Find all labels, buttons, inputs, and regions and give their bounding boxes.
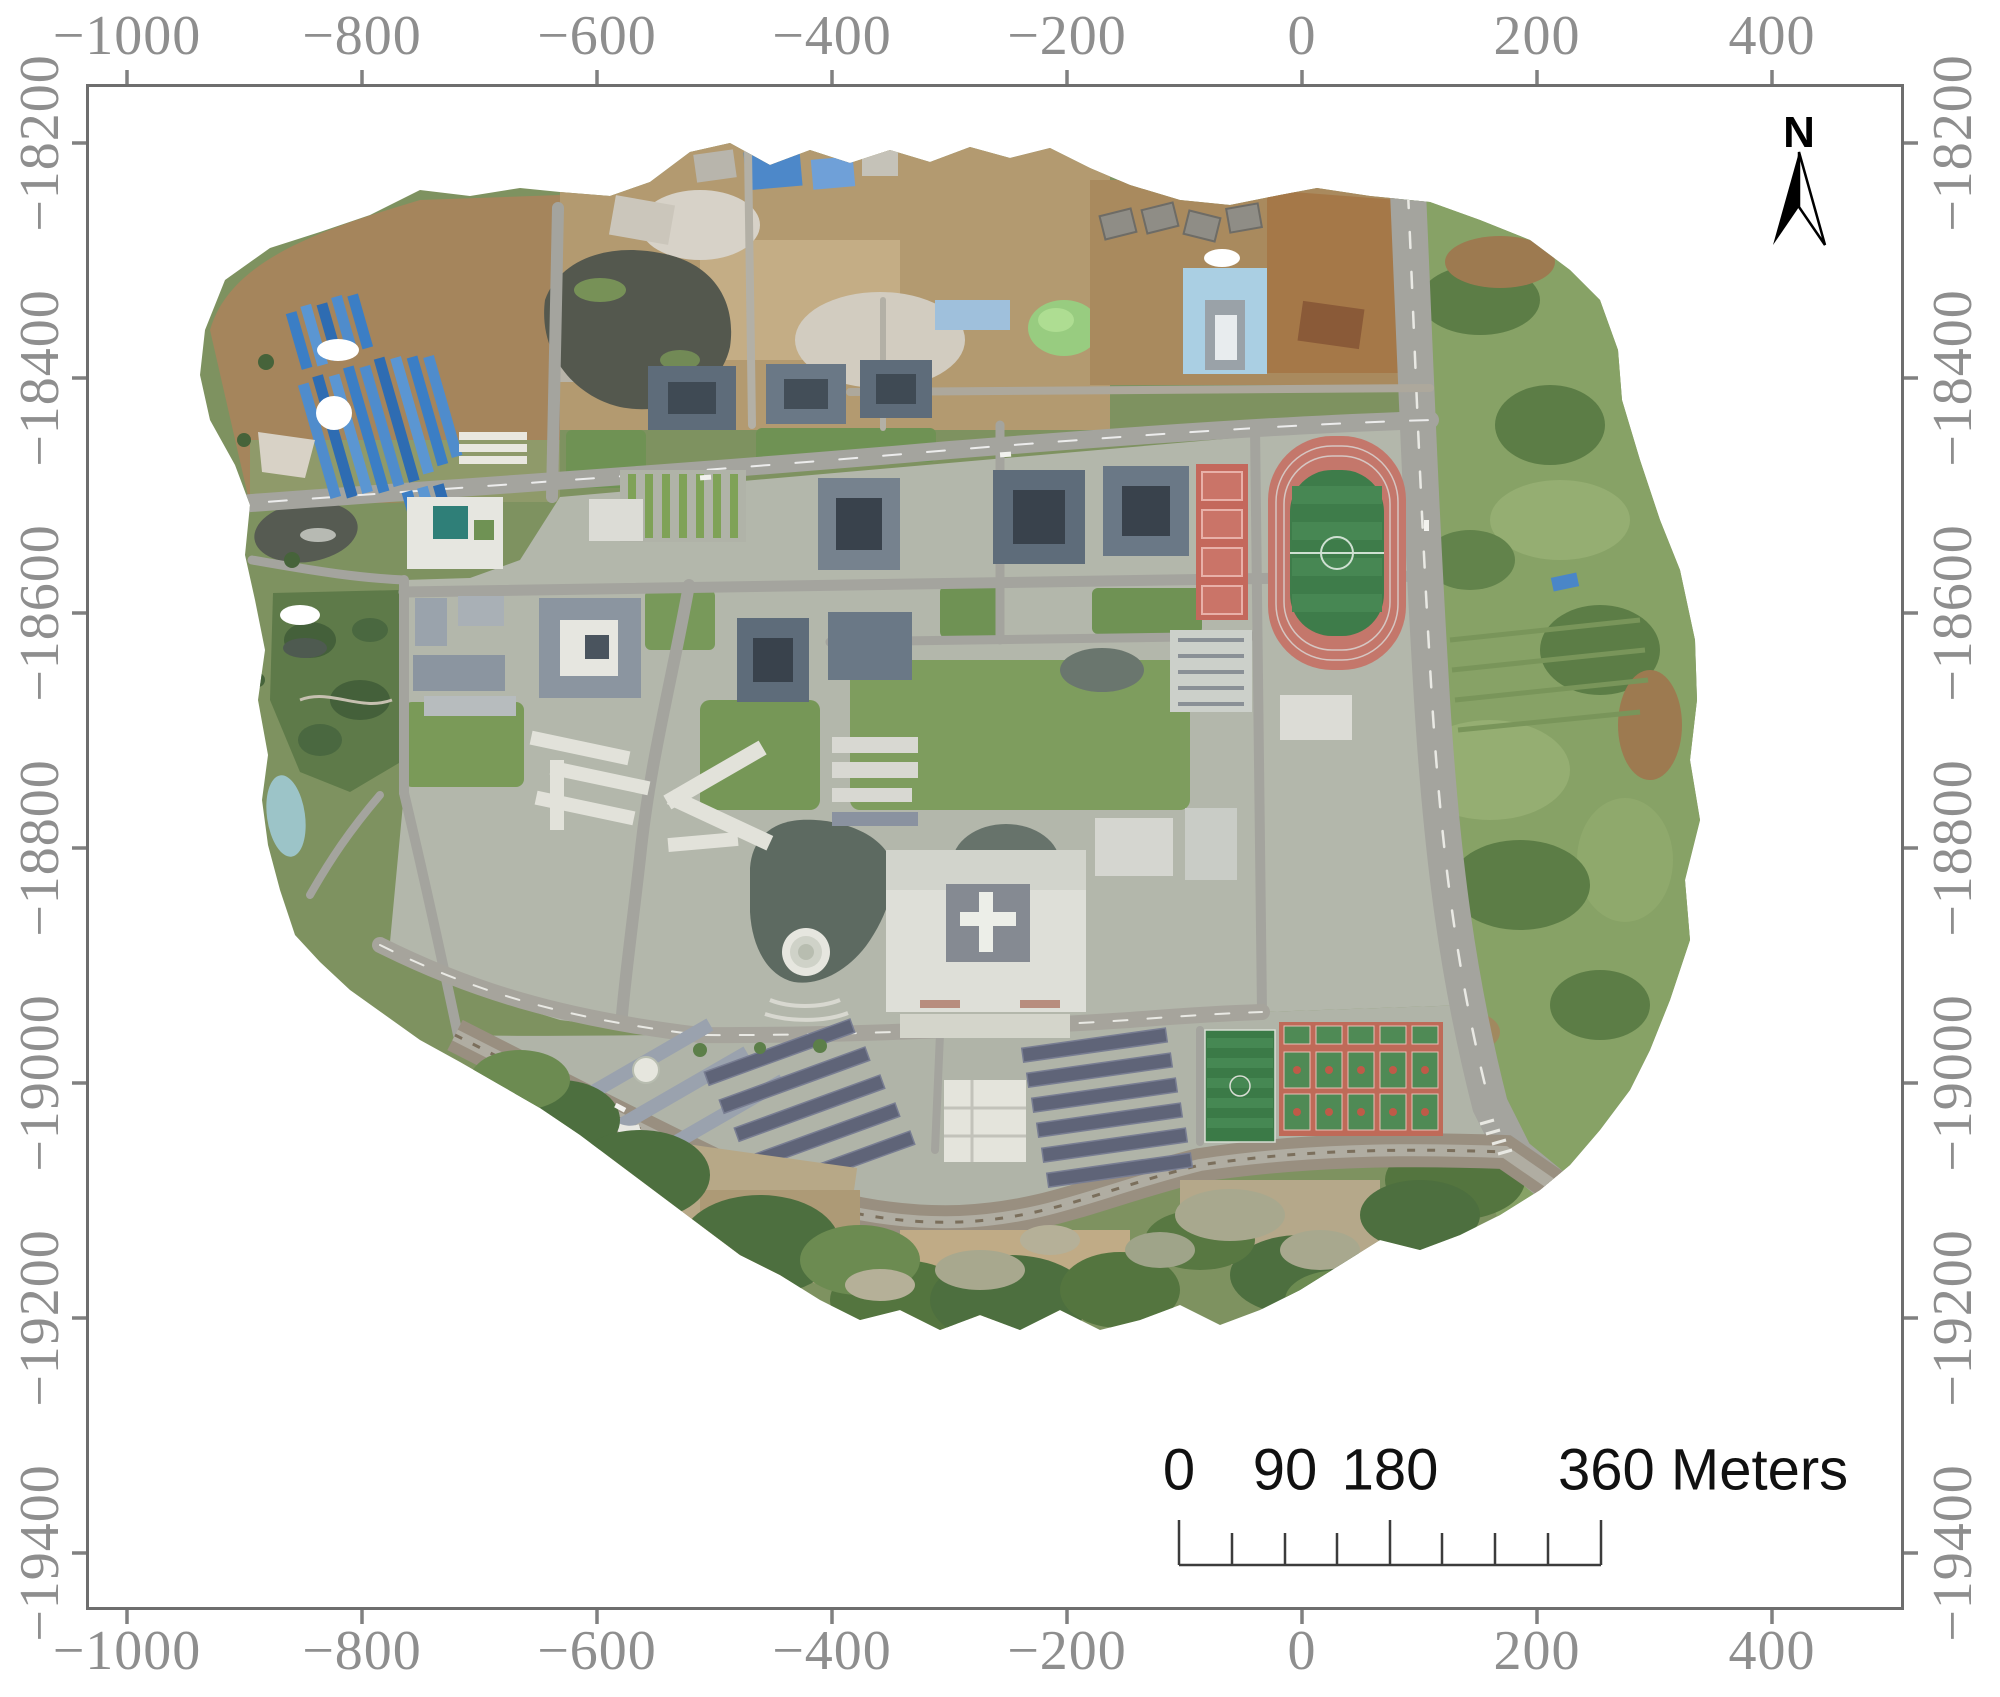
x-tick-label: −400 [772, 1619, 892, 1683]
x-tick-label: −600 [537, 4, 657, 68]
x-tick-label: 200 [1494, 1619, 1581, 1683]
y-tick-label: −19200 [1921, 1229, 1985, 1407]
construction-trailers [459, 432, 527, 464]
y-tick-label: −19000 [1921, 994, 1985, 1172]
library-complex [886, 850, 1086, 1038]
y-tick-label: −19400 [8, 1464, 72, 1642]
y-tick-label: −18200 [1921, 54, 1985, 232]
y-tick-label: −18800 [8, 759, 72, 937]
x-tick-label: 400 [1729, 4, 1816, 68]
running-track [1268, 436, 1406, 670]
scale-bar-label: 90 [1253, 1437, 1318, 1504]
small-pond [1060, 648, 1144, 692]
y-tick-label: −18600 [8, 524, 72, 702]
y-tick-label: −19200 [8, 1229, 72, 1407]
north-label: N [1783, 108, 1815, 158]
x-tick-label: −200 [1007, 1619, 1127, 1683]
construction-northeast [1090, 180, 1404, 385]
x-tick-label: 0 [1288, 4, 1317, 68]
soccer-fields [1205, 1030, 1275, 1142]
basketball-courts [1279, 1022, 1443, 1136]
y-tick-label: −18800 [1921, 759, 1985, 937]
y-tick-label: −19000 [8, 994, 72, 1172]
y-tick-label: −18200 [8, 54, 72, 232]
x-tick-label: 400 [1729, 1619, 1816, 1683]
y-tick-label: −18400 [1921, 289, 1985, 467]
x-tick-label: −1000 [53, 4, 202, 68]
y-tick-label: −18400 [8, 289, 72, 467]
tennis-courts [1196, 464, 1248, 620]
y-tick-label: −18600 [1921, 524, 1985, 702]
x-tick-label: 0 [1288, 1619, 1317, 1683]
map-figure: −1000 −800 −600 −400 −200 0 200 400 −100… [0, 0, 2000, 1697]
y-tick-label: −19400 [1921, 1464, 1985, 1642]
scale-bar-label: 180 [1342, 1437, 1439, 1504]
scale-bar-label: 0 [1163, 1437, 1195, 1504]
x-tick-label: −800 [302, 4, 422, 68]
x-tick-label: −400 [772, 4, 892, 68]
x-tick-label: −200 [1007, 4, 1127, 68]
x-tick-label: −1000 [53, 1619, 202, 1683]
x-tick-label: 200 [1494, 4, 1581, 68]
x-tick-label: −800 [302, 1619, 422, 1683]
canteen [944, 1080, 1026, 1162]
x-tick-label: −600 [537, 1619, 657, 1683]
scale-bar-end-label: 360 Meters [1558, 1437, 1848, 1504]
